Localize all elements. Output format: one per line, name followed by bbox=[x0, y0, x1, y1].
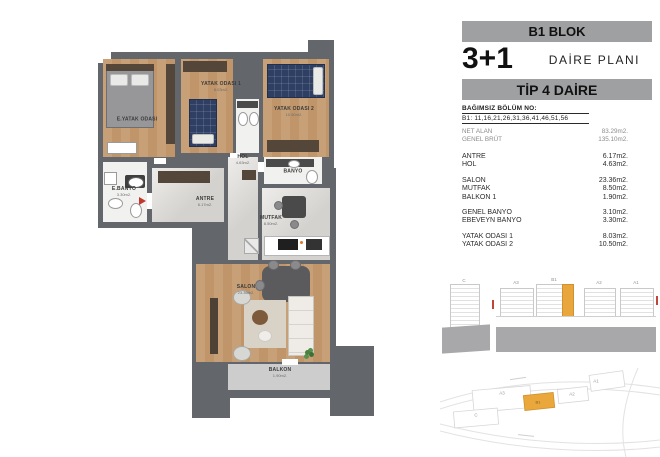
plant bbox=[305, 350, 310, 355]
kitchen-chair bbox=[290, 220, 299, 229]
sofa bbox=[288, 296, 314, 356]
washer bbox=[104, 172, 117, 185]
table-row: EBEVEYN BANYO3.30m2. bbox=[462, 217, 628, 225]
elevation-label-a2: A2 bbox=[596, 280, 602, 285]
elevation-label-b1: B1 bbox=[551, 277, 557, 282]
divider bbox=[462, 123, 589, 124]
oven bbox=[306, 239, 322, 250]
table-row: GENEL BRÜT135.10m2. bbox=[462, 136, 628, 144]
tower-b1-highlight bbox=[562, 284, 574, 318]
kitchen-chair bbox=[274, 201, 283, 210]
parcel-label-c: C bbox=[474, 413, 477, 418]
pillow bbox=[313, 67, 323, 95]
wc-vanity bbox=[237, 101, 258, 108]
area-table: NET ALAN83.29m2. GENEL BRÜT135.10m2. ANT… bbox=[462, 128, 632, 250]
elevation-label-a3: A3 bbox=[513, 280, 519, 285]
block-title: B1 BLOK bbox=[528, 24, 585, 39]
armchair bbox=[233, 346, 251, 361]
room-label-bath: BANYO bbox=[283, 170, 302, 175]
divider bbox=[462, 113, 589, 114]
tv-unit bbox=[210, 298, 218, 354]
door-gap bbox=[282, 359, 298, 365]
table-row: MUTFAK8.50m2. bbox=[462, 185, 628, 193]
parcel-label-a3: A3 bbox=[499, 391, 505, 396]
wc-toilet bbox=[249, 112, 259, 126]
room-label-balcony: BALKON1.90m2. bbox=[269, 368, 292, 378]
bath-sink bbox=[288, 160, 300, 168]
hall-cabinet bbox=[242, 170, 256, 180]
red-marker bbox=[656, 296, 658, 305]
cooktop bbox=[278, 239, 298, 250]
master-toilet bbox=[130, 203, 142, 218]
dining-chair bbox=[290, 260, 301, 270]
room-label-entry: ANTRE6.17m2. bbox=[196, 197, 214, 207]
pillow bbox=[192, 134, 214, 144]
faucet-dot bbox=[300, 241, 303, 244]
coffee-table bbox=[258, 330, 272, 342]
master-dresser bbox=[107, 142, 137, 154]
pillow bbox=[131, 74, 149, 86]
table-row: GENEL BANYO3.10m2. bbox=[462, 209, 628, 217]
table-row: HOL4.63m2. bbox=[462, 161, 628, 169]
room-label-living: SALON23.36m2. bbox=[237, 285, 256, 295]
table-row: ANTRE6.17m2. bbox=[462, 153, 628, 161]
plan-type-label: DAİRE PLANI bbox=[549, 53, 640, 67]
room-label-bedroom1: YATAK ODASI 18.03m2. bbox=[201, 82, 241, 92]
kitchen-table bbox=[282, 196, 306, 218]
master-sink bbox=[108, 198, 123, 209]
red-marker bbox=[492, 300, 494, 309]
table-row: YATAK ODASI 18.03m2. bbox=[462, 233, 628, 241]
pouf bbox=[252, 310, 268, 325]
room-label-kitchen: MUTFAK8.50m2. bbox=[260, 216, 282, 226]
door-gap bbox=[258, 162, 264, 172]
site-plan: A3 B1 A2 A1 C bbox=[440, 368, 660, 457]
ground-main bbox=[496, 327, 656, 352]
floor-plan: E.YATAK ODASI YATAK ODASI 18.03m2. YATAK… bbox=[0, 0, 455, 457]
unit-type: TİP 4 DAİRE bbox=[517, 82, 598, 98]
bath-toilet bbox=[306, 170, 318, 184]
elevation-label-c: C bbox=[462, 278, 465, 283]
room-label-master-bath: E.BANYO3.30m2. bbox=[112, 187, 136, 197]
plan-type-row: 3+1 DAİRE PLANI bbox=[462, 44, 652, 76]
table-row: BALKON 11.90m2. bbox=[462, 194, 628, 202]
tower-a1 bbox=[620, 288, 654, 318]
dining-chair bbox=[255, 280, 265, 291]
wall-shaft bbox=[308, 40, 334, 54]
block-title-bar: B1 BLOK bbox=[462, 21, 652, 42]
bedroom2-wardrobe bbox=[267, 140, 319, 152]
wc-sink bbox=[238, 112, 248, 126]
section-no-label: BAĞIMSIZ BÖLÜM NO: bbox=[462, 105, 537, 112]
elevation-label-a1: A1 bbox=[633, 280, 639, 285]
ground-c bbox=[442, 324, 490, 353]
site-plan-roads bbox=[440, 368, 660, 457]
section-no-value: B1: 11,16,21,26,31,36,41,46,51,56 bbox=[462, 115, 568, 122]
table-row: SALON23.36m2. bbox=[462, 177, 628, 185]
area-group: ANTRE6.17m2. HOL4.63m2. bbox=[462, 153, 632, 170]
tower-c bbox=[450, 284, 480, 330]
entry-closet bbox=[158, 171, 210, 183]
entrance-arrow-icon bbox=[139, 197, 146, 205]
tower-a3 bbox=[500, 288, 534, 318]
door-gap bbox=[154, 158, 166, 164]
room-label-hall: HOL4.63m2. bbox=[236, 155, 250, 165]
master-wardrobe bbox=[166, 64, 175, 144]
table-row: NET ALAN83.29m2. bbox=[462, 128, 628, 136]
apartment-plan-sheet: E.YATAK ODASI YATAK ODASI 18.03m2. YATAK… bbox=[0, 0, 660, 457]
parcel-label-a2: A2 bbox=[569, 392, 575, 397]
pillow bbox=[110, 74, 128, 86]
entrance-door-gap bbox=[147, 193, 152, 209]
room-label-bedroom2: YATAK ODASI 210.50m2. bbox=[274, 107, 314, 117]
bedroom1-wardrobe bbox=[183, 61, 227, 72]
dishwasher bbox=[244, 238, 259, 254]
area-group: YATAK ODASI 18.03m2. YATAK ODASI 210.50m… bbox=[462, 233, 632, 250]
room-label-master-bedroom: E.YATAK ODASI bbox=[117, 118, 158, 123]
area-summary: NET ALAN83.29m2. GENEL BRÜT135.10m2. bbox=[462, 128, 632, 144]
area-group: SALON23.36m2. MUTFAK8.50m2. BALKON 11.90… bbox=[462, 177, 632, 202]
plan-type: 3+1 bbox=[462, 42, 513, 76]
master-bed-headboard bbox=[106, 64, 154, 71]
dining-chair bbox=[268, 260, 279, 270]
unit-type-bar: TİP 4 DAİRE bbox=[462, 79, 652, 100]
table-row: YATAK ODASI 210.50m2. bbox=[462, 241, 628, 249]
parcel-label-a1: A1 bbox=[593, 379, 599, 384]
parcel-label-b1: B1 bbox=[536, 400, 541, 405]
wall-block bbox=[192, 360, 230, 418]
tower-a2 bbox=[584, 288, 616, 318]
wall-block bbox=[330, 346, 374, 416]
area-group: GENEL BANYO3.10m2. EBEVEYN BANYO3.30m2. bbox=[462, 209, 632, 226]
building-elevation: C A3 B1 A2 A1 bbox=[438, 272, 660, 366]
